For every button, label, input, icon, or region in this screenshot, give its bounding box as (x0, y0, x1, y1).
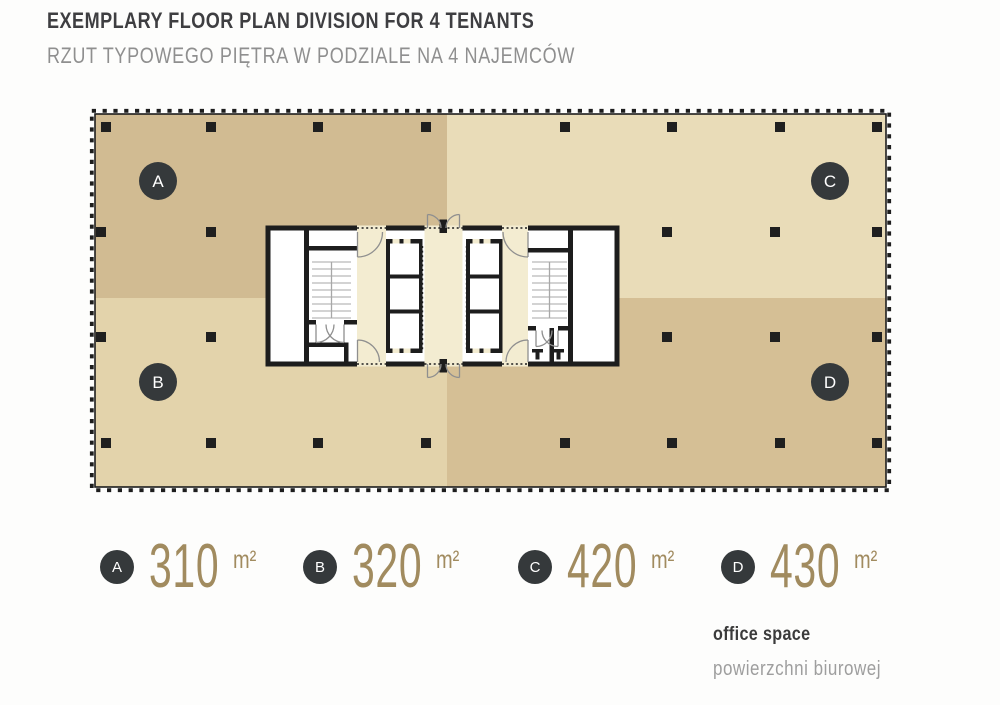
legend-area-d: 430 (770, 544, 840, 590)
legend-item-a: A 310 m² (100, 544, 263, 590)
legend-item-b: B 320 m² (303, 544, 466, 590)
legend-area-a: 310 (149, 544, 219, 590)
elevator-bank-left (386, 239, 423, 353)
legend-unit-d: m² (854, 546, 877, 575)
legend-badge-c: C (518, 550, 552, 584)
legend-note-en: office space (713, 624, 810, 646)
legend-item-d: D 430 m² (721, 544, 884, 590)
legend-unit-a: m² (233, 546, 256, 575)
floor-plan-page: EXEMPLARY FLOOR PLAN DIVISION FOR 4 TENA… (0, 0, 1000, 705)
plan-badge-d: D (811, 363, 849, 401)
legend-area-b: 320 (352, 544, 422, 590)
elevator-bank-right (466, 239, 503, 353)
plan-badge-c: C (811, 162, 849, 200)
legend-badge-a: A (100, 550, 134, 584)
plan-badge-a: A (139, 162, 177, 200)
building-core (268, 215, 617, 378)
legend-note: office space powierzchni biurowej (713, 624, 911, 681)
legend-badge-d: D (721, 550, 755, 584)
legend-badge-b: B (303, 550, 337, 584)
legend-unit-b: m² (436, 546, 459, 575)
plan-badge-b: B (139, 363, 177, 401)
legend-note-pl: powierzchni biurowej (713, 658, 881, 681)
plan-badge-a-label: A (152, 172, 164, 191)
plan-badge-d-label: D (824, 373, 836, 392)
legend-unit-c: m² (651, 546, 674, 575)
legend-area-c: 420 (567, 544, 637, 590)
plan-badge-b-label: B (152, 373, 163, 392)
legend-item-c: C 420 m² (518, 544, 681, 590)
plan-badge-c-label: C (824, 172, 836, 191)
